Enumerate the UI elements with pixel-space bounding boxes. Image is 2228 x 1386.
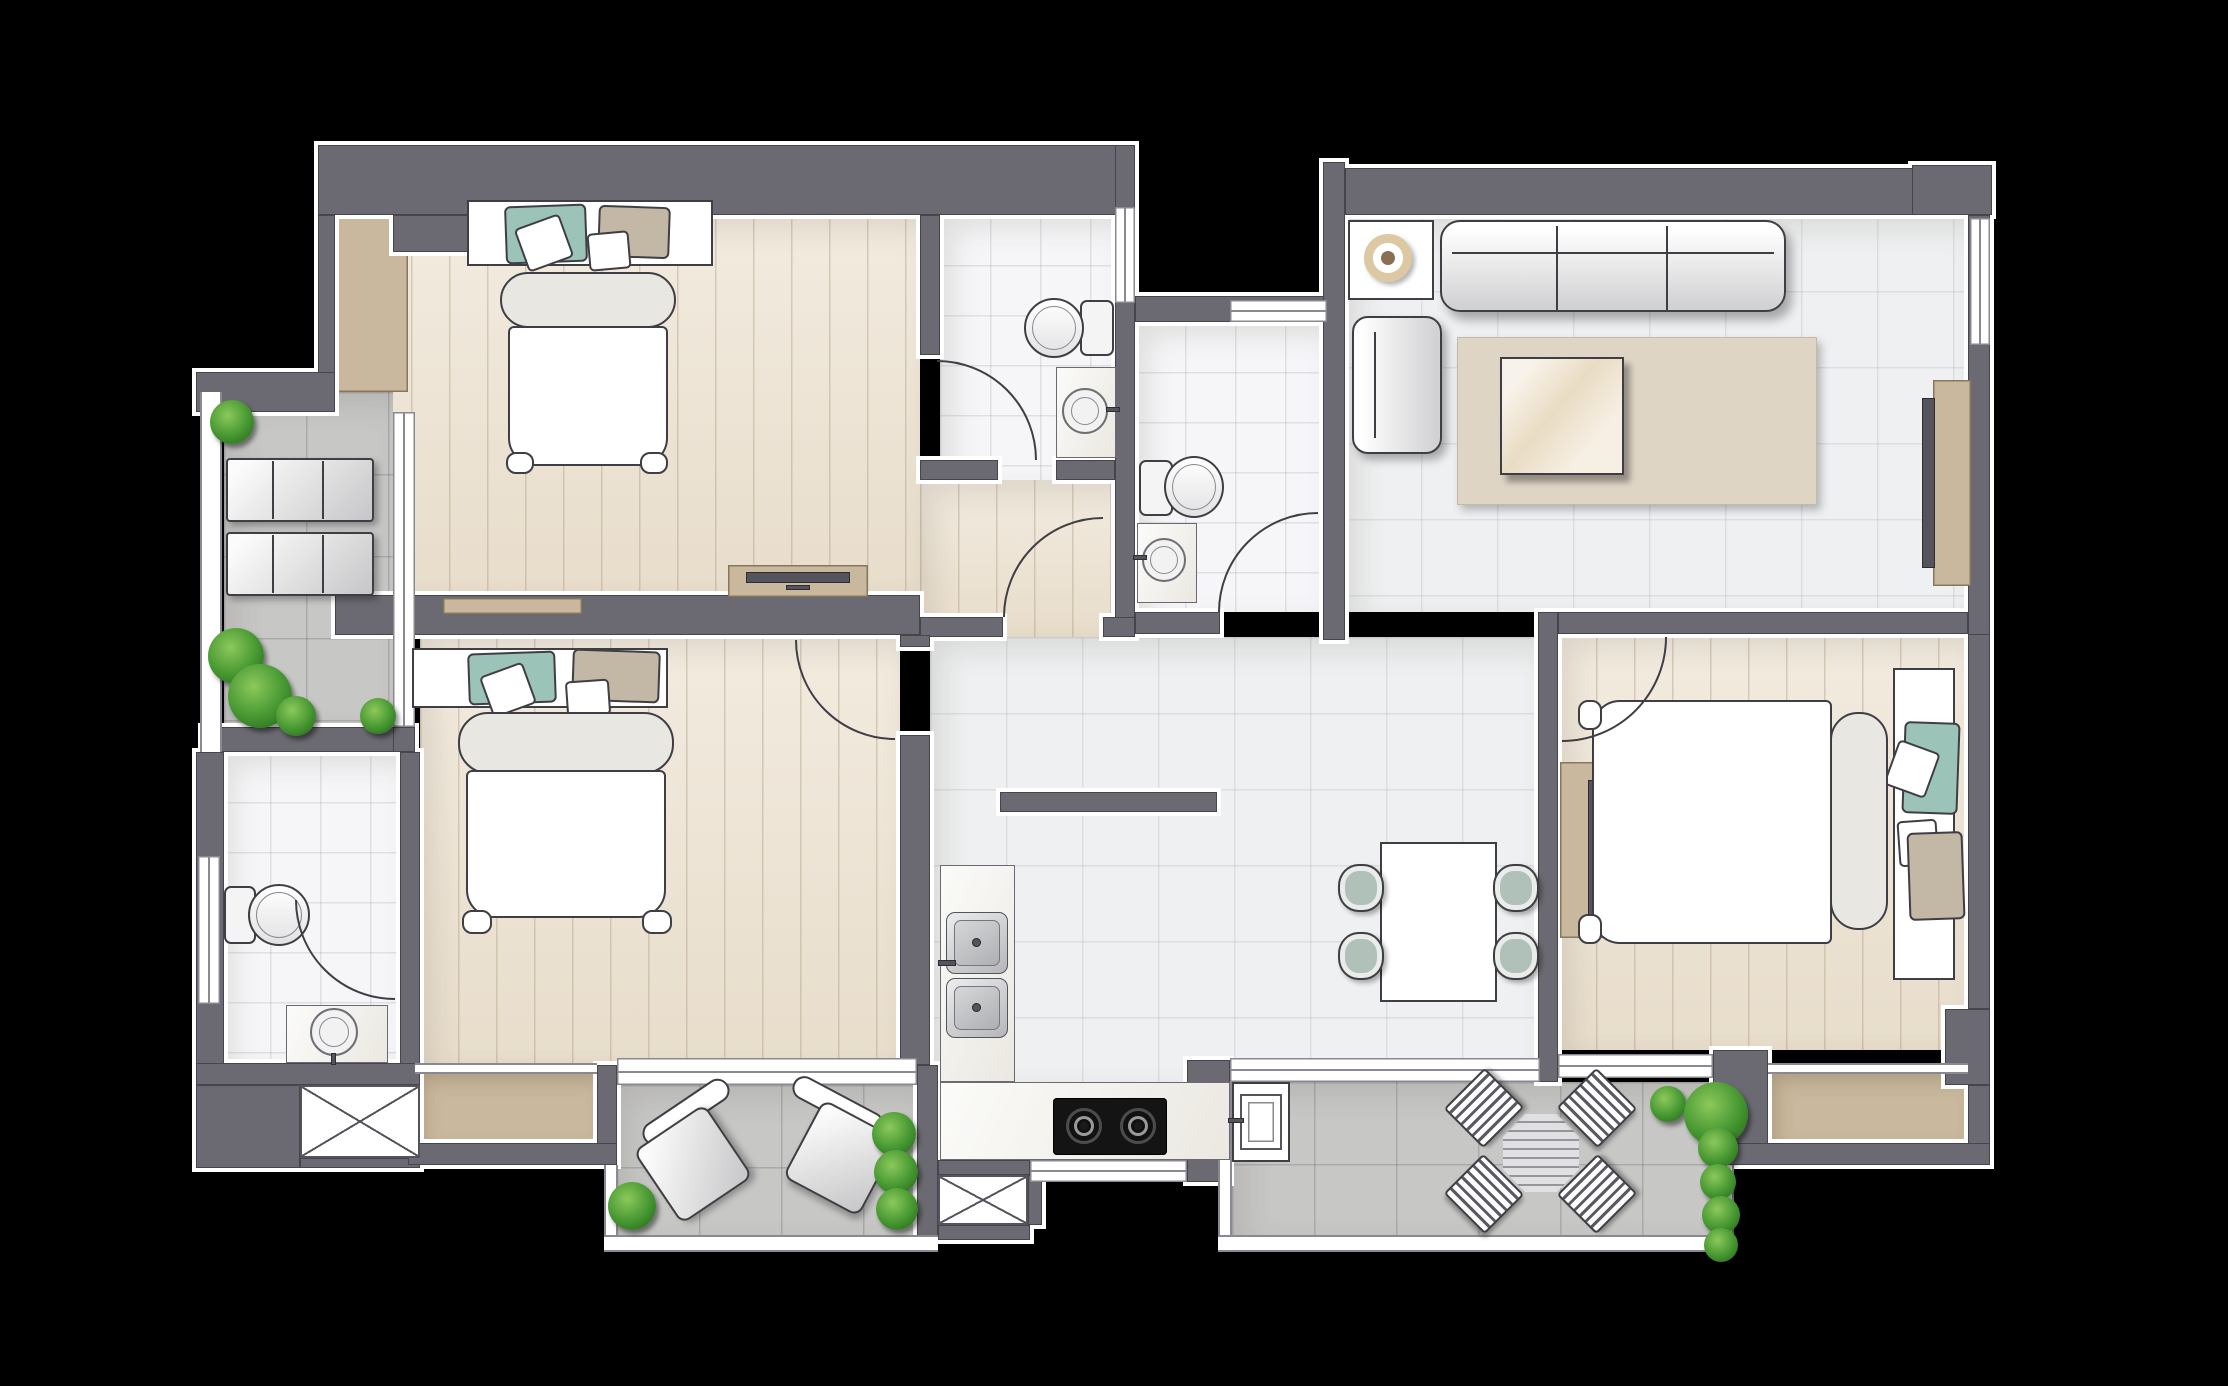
kitchen-burner-2 — [1120, 1108, 1156, 1144]
wall-bed2-right-upper — [900, 635, 930, 647]
bed1-tv — [746, 572, 850, 583]
wall-under-shaft — [300, 1158, 420, 1168]
plant — [1700, 1164, 1736, 1200]
bathroom3-faucet — [331, 1053, 336, 1065]
bed2-foot-right — [642, 910, 672, 934]
bathroom3-sink-inner — [319, 1017, 349, 1047]
wall-hall-kitchen-stub — [1000, 792, 1217, 812]
bathroom1-faucet — [1106, 407, 1120, 412]
bathroom3-toilet-seat — [256, 892, 302, 938]
plant — [360, 698, 396, 734]
living-armchair — [1352, 316, 1442, 454]
wall-dining-bed3 — [1538, 612, 1558, 1082]
railing-ledge-left-top — [415, 1063, 597, 1074]
laundry-faucet — [1228, 1118, 1244, 1123]
bed2-blanket-roll — [458, 712, 674, 774]
wall-shaft-kitchen-right — [1028, 1175, 1042, 1225]
wall-ledge-right-bottom — [1713, 1143, 1990, 1165]
wall-bed3-top — [1558, 612, 1968, 634]
wall-under-window — [393, 727, 415, 752]
window-bed2-balcony — [617, 1058, 917, 1085]
lounger-1 — [226, 458, 374, 522]
shaft-bottom-left — [300, 1085, 420, 1158]
bed3-foot-bottom — [1578, 914, 1602, 944]
living-sofa — [1440, 220, 1786, 312]
railing-ledge-right-top — [1768, 1063, 1968, 1074]
dining-chair-2 — [1338, 932, 1384, 980]
window-living — [1970, 218, 1990, 345]
lounger-2-line-2 — [322, 535, 324, 593]
bed1-foot-right — [640, 452, 668, 474]
railing-bl-bottom — [604, 1235, 938, 1252]
wall-pillar — [393, 215, 470, 252]
bed1-tv-stand — [786, 585, 810, 590]
living-sofa-backline — [1452, 252, 1774, 254]
bathroom1-toilet-seat — [1032, 306, 1076, 350]
wall-shaft-kitchen-bottom — [938, 1225, 1030, 1240]
wall-bath2-bottom — [1135, 612, 1220, 634]
living-sofa-divider-1 — [1556, 226, 1558, 310]
bed2-foot-left — [462, 910, 492, 934]
living-armchair-line — [1374, 332, 1376, 438]
living-lamp-core — [1381, 251, 1395, 265]
living-tv — [1922, 398, 1935, 568]
railing-br-bottom — [1218, 1235, 1734, 1252]
dining-chair-4 — [1493, 932, 1539, 980]
plant — [210, 400, 254, 444]
lounger-1-line-1 — [272, 461, 274, 519]
window-bath2 — [1230, 300, 1327, 322]
bathroom2-faucet — [1133, 555, 1147, 560]
living-tv-console — [1933, 380, 1971, 586]
window-bath1 — [1115, 207, 1135, 303]
plant — [1650, 1086, 1686, 1122]
wall-vestibule-bottom — [920, 617, 1003, 637]
laundry-basin — [1240, 1094, 1282, 1150]
dining-table — [1380, 842, 1497, 1002]
lounger-1-line-2 — [322, 461, 324, 519]
window-bed3 — [1558, 1054, 1713, 1078]
ac-ledge-right — [1768, 1072, 1968, 1143]
bed3-blanket-roll — [1830, 712, 1888, 930]
wall-bed3-right — [1968, 634, 1990, 1009]
plant — [1698, 1128, 1738, 1168]
dining-chair-1 — [1338, 864, 1384, 912]
kitchen-sink-drain-1 — [972, 938, 981, 947]
wall-bed1-bath1 — [920, 215, 940, 355]
wall-bed2-right — [900, 735, 930, 1065]
bathroom2-toilet-seat — [1172, 464, 1216, 510]
wall-left-upper — [318, 215, 335, 392]
wall-living-left — [1323, 162, 1345, 640]
bed1-duvet — [508, 326, 668, 466]
wall-living-corner-block — [1912, 165, 1992, 215]
floor-plan — [0, 0, 2228, 1386]
bathroom1-sink-inner — [1071, 397, 1099, 425]
wall-bath1-vanity-side — [1056, 460, 1115, 480]
bed3-duvet — [1592, 700, 1832, 944]
railing-balcony-left — [200, 392, 222, 752]
wall-living-top — [1345, 168, 1915, 215]
shaft-kitchen — [938, 1175, 1028, 1225]
wall-vestibule-stub — [1103, 617, 1135, 637]
lounger-2-line-1 — [272, 535, 274, 593]
wall-bed1-bottom — [335, 595, 920, 635]
window-bath3 — [198, 856, 220, 1004]
wall-bath1-elbow — [920, 460, 998, 480]
bed1-blanket-roll — [500, 272, 676, 328]
bed2-duvet — [466, 770, 666, 918]
bed1-pillow-white-2 — [586, 230, 631, 272]
plant — [876, 1188, 918, 1230]
ac-ledge-left — [415, 1072, 597, 1143]
window-kitchen — [1030, 1160, 1187, 1182]
wall-ledge-left-bottom — [408, 1143, 617, 1165]
kitchen-faucet — [938, 960, 956, 966]
wall-shaft-kitchen-top — [938, 1160, 1030, 1175]
outdoor-table — [1503, 1114, 1579, 1192]
wall-kitchen-left — [917, 1065, 938, 1240]
dining-chair-3 — [1493, 864, 1539, 912]
bed2-headboard-shelf — [443, 598, 582, 614]
bathroom2-sink-inner — [1150, 546, 1178, 574]
wall-top-left — [318, 145, 1135, 215]
plant — [608, 1182, 656, 1230]
wall-bottom-left-block — [196, 1085, 300, 1168]
bathroom1-toilet-tank — [1080, 300, 1114, 356]
bed1-foot-left — [506, 452, 534, 474]
kitchen-burner-1 — [1066, 1108, 1102, 1144]
kitchen-sink-drain-2 — [972, 1003, 981, 1012]
living-coffee-table — [1500, 357, 1624, 475]
plant — [1704, 1228, 1738, 1262]
bed3-pillow-taupe — [1906, 831, 1965, 921]
plant — [276, 696, 316, 736]
living-sofa-divider-2 — [1666, 226, 1668, 310]
lounger-2 — [226, 532, 374, 596]
wall-bottom-left-band — [196, 1063, 420, 1085]
